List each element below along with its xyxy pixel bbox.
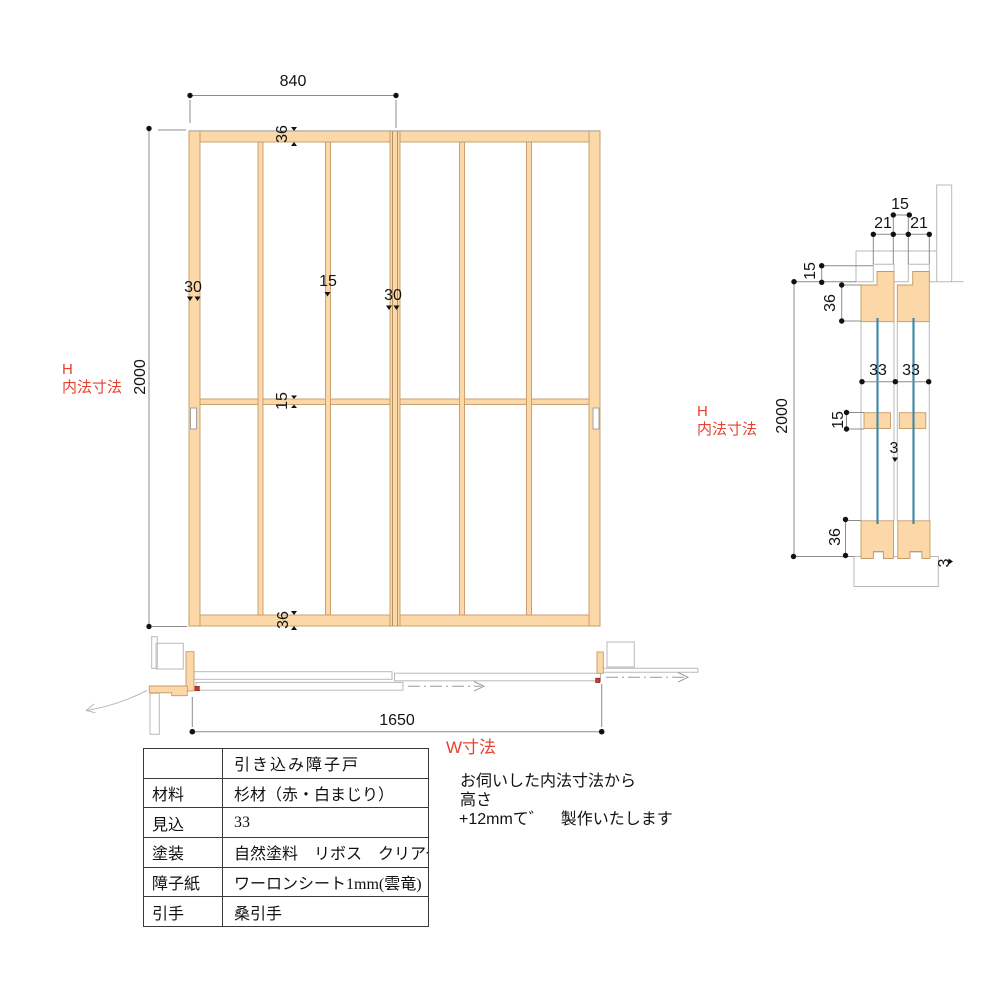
- h-letter: H: [62, 361, 122, 379]
- dim-groove-left: 21: [868, 216, 898, 232]
- elevation-view: [189, 131, 600, 626]
- dim-door-thickness-right: 33: [896, 363, 926, 379]
- wall-right: [607, 642, 634, 667]
- plan-jambs: [149, 652, 603, 696]
- pocket-wall-left: [156, 643, 183, 669]
- bottom-rail-section-1: [861, 521, 894, 559]
- pocket-door-plan: [196, 682, 403, 690]
- w-dimension-label: W寸法: [446, 739, 496, 756]
- dim-bottom-rail-height: 36: [828, 525, 844, 549]
- dim-left-stile: 30: [178, 280, 208, 296]
- dim-meeting-stile: 30: [378, 288, 408, 304]
- h-letter: H: [697, 403, 757, 421]
- dim-bottom-rail: 36: [276, 608, 292, 632]
- spec-label-empty: [144, 749, 223, 779]
- spec-label: 見込: [144, 808, 223, 838]
- dim-mid-rail: 15: [275, 389, 291, 413]
- handle-marker: [195, 686, 199, 690]
- section-rails: [861, 272, 930, 559]
- slide-arrows: [408, 673, 688, 692]
- table-row: 塗装 自然塗料 リボス クリアー: [144, 837, 429, 867]
- front-door-plan: [395, 673, 601, 681]
- mullion: [527, 142, 532, 615]
- dim-groove-right: 21: [904, 216, 934, 232]
- top-rail-section-2: [897, 272, 929, 322]
- spec-value: ワーロンシート1mm(雲竜): [223, 867, 429, 897]
- h-caption: 内法寸法: [62, 379, 122, 397]
- mullion: [326, 142, 331, 615]
- spec-value: 33: [223, 808, 429, 838]
- dim-opening-width: 1650: [367, 713, 427, 729]
- table-row: 引手 桑引手: [144, 897, 429, 927]
- spec-value: 自然塗料 リボス クリアー: [223, 837, 429, 867]
- elevation-dim-dots: [146, 93, 399, 630]
- bottom-rail-section-2: [898, 521, 930, 559]
- spec-title: 引き込み障子戸: [223, 749, 429, 779]
- note-line-2: 高さ: [460, 791, 492, 810]
- head-jamb-post: [937, 185, 952, 282]
- pocket-jamb: [186, 652, 194, 691]
- top-rail-section-1: [861, 272, 894, 322]
- handle-marker: [596, 678, 600, 682]
- spec-table: 引き込み障子戸 材料 杉材（赤・白まじり） 見込 33 塗装 自然塗料 リボス …: [143, 748, 429, 927]
- dim-height-right: 2000: [775, 386, 791, 446]
- spec-label: 引手: [144, 897, 223, 927]
- dim-mullion: 15: [313, 274, 343, 290]
- dim-door-thickness-left: 33: [863, 363, 893, 379]
- table-row: 材料 杉材（赤・白まじり）: [144, 778, 429, 808]
- h-dimension-label-left: H 内法寸法: [62, 361, 122, 397]
- spec-label: 材料: [144, 778, 223, 808]
- dim-top-rail: 36: [275, 122, 291, 146]
- spec-value: 桑引手: [223, 897, 429, 927]
- rear-door-plan: [194, 672, 392, 680]
- swing-arc: [86, 691, 147, 711]
- dim-groove-depth: 15: [803, 259, 819, 283]
- right-stile: [589, 131, 600, 626]
- table-row: 見込 33: [144, 808, 429, 838]
- note-line-3: +12mmて゛ 製作いたします: [459, 810, 673, 829]
- dim-height-left: 2000: [133, 347, 149, 407]
- right-jamb: [597, 652, 603, 673]
- elevation-dim-lines: [149, 96, 396, 627]
- left-stile: [189, 131, 200, 626]
- spec-value: 杉材（赤・白まじり）: [223, 778, 429, 808]
- h-dimension-label-right: H 内法寸法: [697, 403, 757, 439]
- dim-door-gap: 3: [884, 441, 904, 457]
- shoji-door-drawing: 840 2000 36 15 36 30 15 30 15 21 21 15 3…: [0, 0, 1000, 1000]
- pull-handle-right: [593, 408, 599, 429]
- dim-door-width: 840: [268, 74, 318, 90]
- mullion: [258, 142, 263, 615]
- dim-track-rail-height: 3: [937, 553, 953, 573]
- dim-track-gap: 15: [885, 197, 915, 213]
- pocket-sill: [149, 686, 187, 696]
- note-line-1: お伺いした内法寸法から: [460, 772, 636, 791]
- mullion: [460, 142, 465, 615]
- h-caption: 内法寸法: [697, 421, 757, 439]
- table-row: 障子紙 ワーロンシート1mm(雲竜): [144, 867, 429, 897]
- spec-label: 障子紙: [144, 867, 223, 897]
- dim-top-rail-height: 36: [823, 291, 839, 315]
- meeting-stiles: [390, 131, 400, 626]
- dim-mid-rail-height: 15: [831, 408, 847, 432]
- spec-label: 塗装: [144, 837, 223, 867]
- table-row: 引き込み障子戸: [144, 749, 429, 779]
- pull-handle-left: [191, 408, 197, 429]
